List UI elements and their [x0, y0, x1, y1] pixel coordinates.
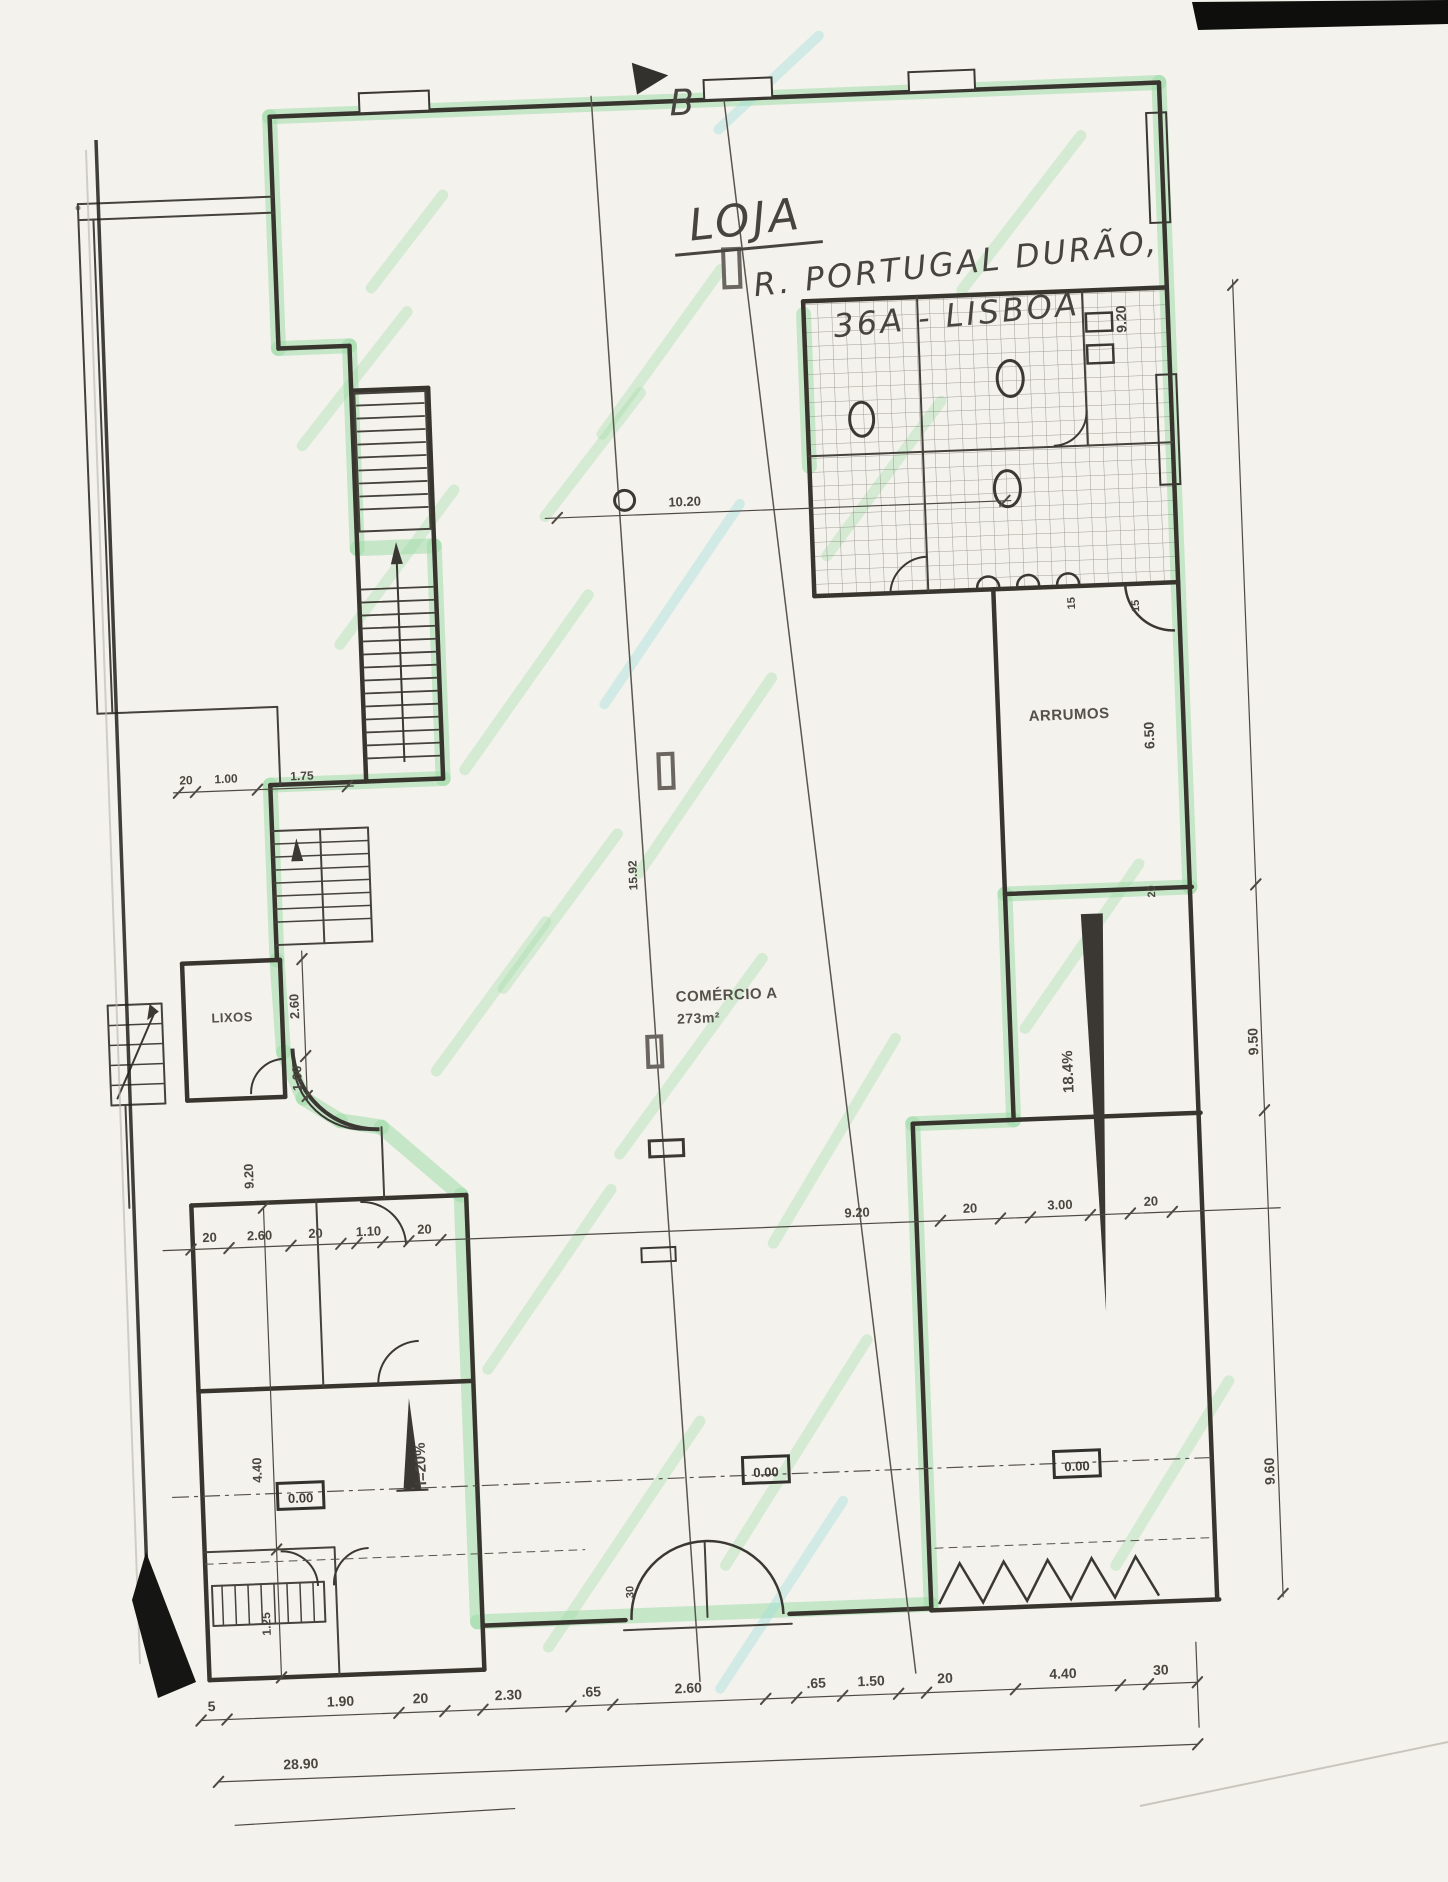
dim-left: 9.20 [241, 1163, 257, 1189]
dim-left: 1.25 [259, 1612, 274, 1636]
dim-door: 30 [624, 1586, 636, 1599]
scan-speck [76, 206, 81, 211]
dim-middle: 20 [417, 1221, 432, 1237]
dim-total-width: 28.90 [283, 1755, 319, 1772]
level-value-center: 0.00 [753, 1464, 779, 1480]
dim-right: 6.50 [1140, 721, 1157, 749]
dim-bottom: 5 [207, 1698, 216, 1714]
window-notch [908, 70, 975, 93]
dim-wall: 20 [1146, 885, 1158, 898]
dim-wall: 15 [1130, 599, 1142, 612]
dim-bottom: 4.40 [1049, 1665, 1077, 1682]
dim-middle: 1.10 [356, 1223, 382, 1239]
dim-middle: 9.20 [844, 1204, 870, 1220]
dim-stair: 20 [179, 773, 193, 788]
room-label-arrumos: ARRUMOS [1028, 705, 1110, 725]
dim-bottom: 20 [937, 1670, 953, 1687]
dim-bottom: .65 [806, 1675, 826, 1692]
dim-bottom: 2.30 [494, 1686, 522, 1703]
dim-left: 2.60 [286, 993, 302, 1019]
dim-top-span: 10.20 [668, 493, 701, 509]
slope-label-right: 18.4% [1059, 1050, 1078, 1093]
window-notch [704, 77, 773, 100]
dim-middle: 20 [202, 1230, 217, 1246]
room-area-label: 273m² [677, 1009, 721, 1027]
window-notch [359, 91, 430, 114]
dim-bottom: .65 [581, 1683, 601, 1700]
ramp-base [396, 1490, 428, 1491]
dim-middle: 2.60 [247, 1227, 273, 1243]
dim-corridor: 15.92 [625, 860, 640, 891]
dim-left: 4.40 [249, 1457, 265, 1483]
dim-right: 9.60 [1261, 1457, 1278, 1485]
scanned-floor-plan-page: LOJA R. PORTUGAL DURÃO, 36A - LISBOA B A… [0, 0, 1448, 1882]
dim-wall: 15 [1066, 597, 1078, 610]
level-value-right: 0.00 [1064, 1458, 1090, 1474]
dim-bottom: 1.90 [327, 1693, 355, 1710]
dim-bottom: 30 [1153, 1661, 1169, 1678]
dim-right: 9.20 [1112, 305, 1129, 333]
dim-bottom: 2.60 [674, 1679, 702, 1696]
dim-bottom: 1.50 [857, 1672, 885, 1689]
dim-bottom: 20 [412, 1690, 428, 1707]
dim-right: 9.50 [1244, 1028, 1261, 1056]
dim-middle: 3.00 [1047, 1197, 1073, 1213]
section-marker-label: B [669, 82, 698, 124]
slope-label-left: i=20% [412, 1442, 431, 1486]
dim-stair: 1.75 [290, 769, 314, 784]
dim-middle: 20 [308, 1226, 323, 1242]
dim-middle: 20 [1143, 1193, 1158, 1209]
dim-stair: 1.00 [214, 771, 238, 786]
floor-plan-image: LOJA R. PORTUGAL DURÃO, 36A - LISBOA B A… [0, 0, 1448, 1882]
dim-middle: 20 [962, 1200, 977, 1216]
dim-left: 1.00 [289, 1065, 305, 1091]
level-value-left: 0.00 [288, 1490, 314, 1506]
room-label-lixos: LIXOS [211, 1009, 253, 1026]
